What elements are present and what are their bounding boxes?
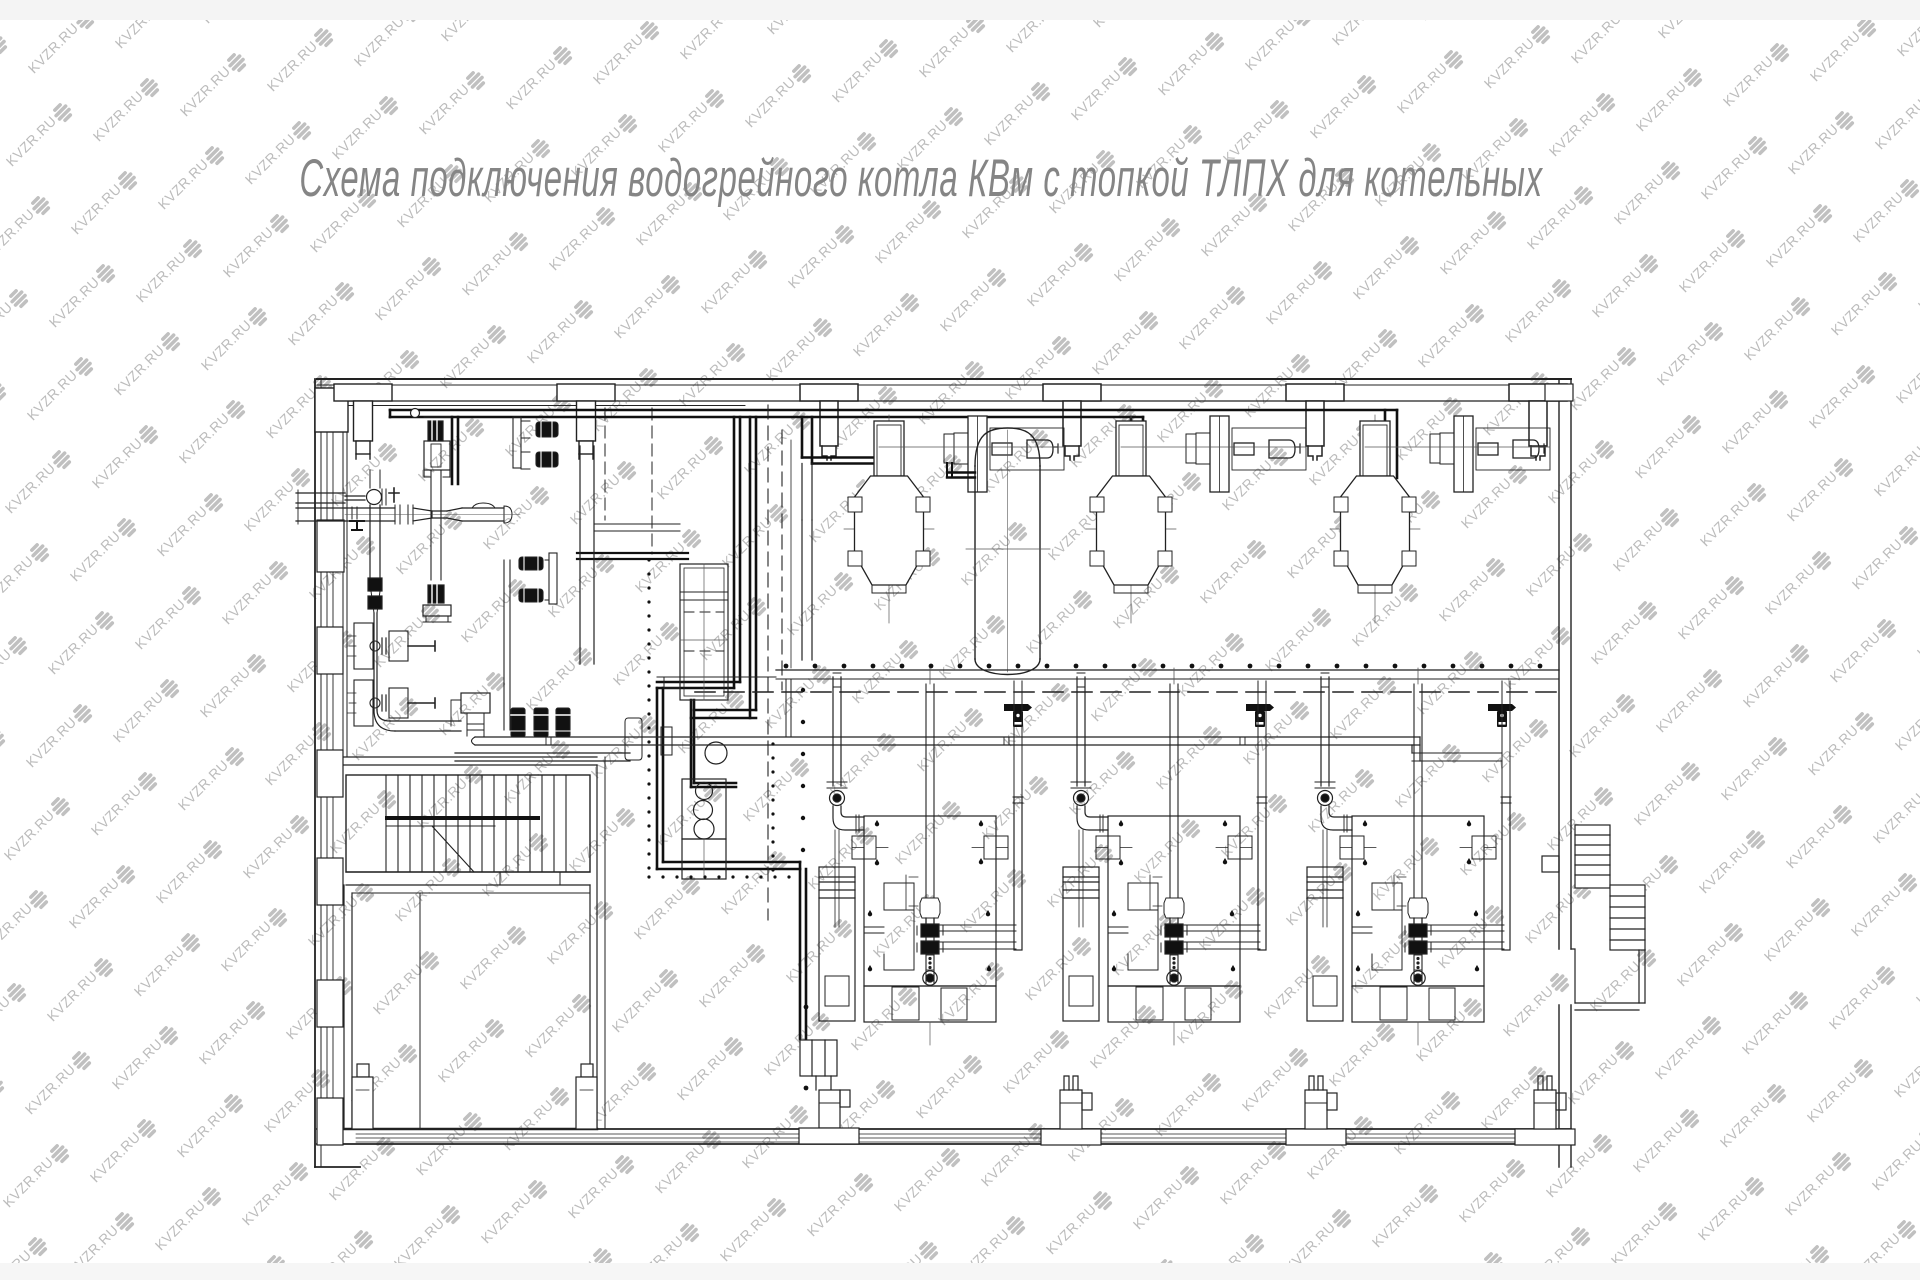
svg-text:Схема подключения водогрейного: Схема подключения водогрейного котла КВм… (299, 149, 1543, 208)
